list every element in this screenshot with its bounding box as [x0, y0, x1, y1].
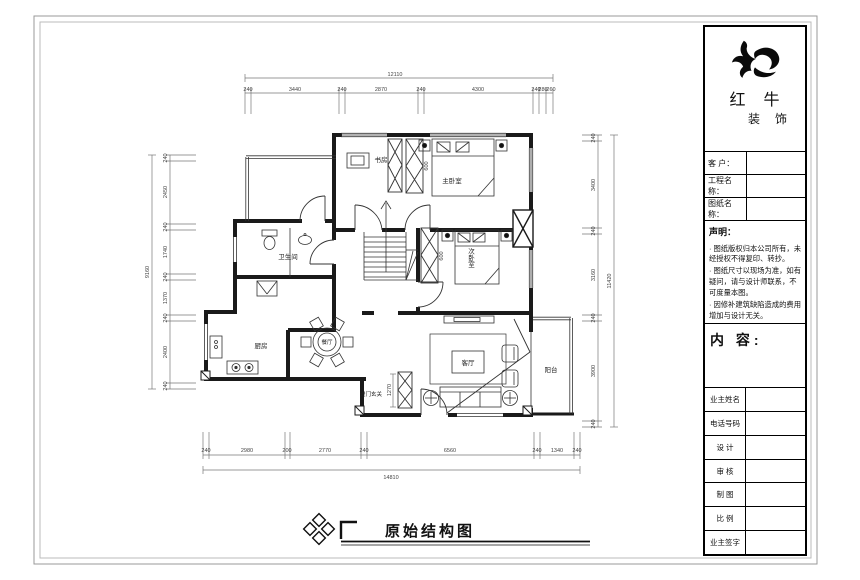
row-owner-name: 业主姓名: [705, 388, 805, 412]
dim-entry-cabinet: 1270: [387, 384, 393, 396]
fridge: [210, 336, 222, 358]
dim-bottom-seg-4: 240: [359, 448, 368, 454]
row-draft: 制 图: [705, 483, 805, 507]
field-row-drawing: 图纸名称：: [705, 198, 805, 221]
room-label-study: 书房: [375, 155, 388, 164]
dim-top-seg-4: 240: [416, 87, 425, 93]
dim-right-seg-0: 240: [591, 133, 597, 142]
stove: [227, 361, 258, 374]
dim-left-seg-3: 1740: [163, 246, 169, 258]
dim-top-total: 12110: [388, 72, 403, 78]
dim-right-seg-3: 3160: [591, 269, 597, 281]
dim-right-seg-5: 3900: [591, 365, 597, 377]
field-row-customer: 客 户：: [705, 152, 805, 175]
second-bed: [455, 230, 499, 284]
row-label: 业主签字: [705, 531, 746, 554]
dim-left: [148, 155, 196, 389]
dim-bottom-total: 14810: [383, 475, 398, 481]
toilet: [262, 230, 277, 250]
dim-left-seg-1: 2450: [163, 186, 169, 198]
row-value: [746, 460, 805, 483]
dim-top: [245, 74, 553, 114]
dim-top-seg-5: 4300: [472, 87, 484, 93]
brand-name-bottom: 装 饰: [705, 110, 805, 127]
study-desk: [347, 153, 369, 168]
field-value-project: [747, 175, 805, 197]
dim-right-seg-6: 240: [591, 419, 597, 428]
dim-bottom-seg-2: 200: [282, 448, 291, 454]
dim-right-total: 11420: [607, 274, 613, 289]
dim-bottom-seg-7: 1340: [551, 448, 563, 454]
dim-top-seg-2: 240: [337, 87, 346, 93]
dim-top-seg-3: 2870: [375, 87, 387, 93]
dim-right-seg-1: 3400: [591, 179, 597, 191]
row-label: 电话号码: [705, 412, 746, 435]
brand-logo-section: 红 牛 装 饰: [705, 27, 805, 152]
windows: [204, 133, 572, 416]
dim-bottom-seg-0: 240: [201, 448, 210, 454]
room-label-balcony: 阳台: [545, 365, 558, 374]
row-value: [746, 412, 805, 435]
sofa: [440, 387, 501, 407]
dim-left-seg-0: 240: [163, 153, 169, 162]
row-review: 审 核: [705, 460, 805, 484]
room-label-second: 次卧室: [467, 247, 475, 268]
living-rug: [430, 334, 506, 384]
row-value: [746, 483, 805, 506]
dim-right-seg-2: 240: [591, 226, 597, 235]
dim-wardrobe-master: 600: [424, 161, 430, 170]
brand-logo-bull: [719, 31, 791, 87]
dim-wardrobe-second: 600: [439, 251, 445, 260]
row-scale: 比 例: [705, 507, 805, 531]
statement-line: · 因修补建筑缺陷造成的费用增加与设计无关。: [709, 300, 802, 322]
field-value-drawing: [747, 198, 805, 220]
dim-left-seg-2: 240: [163, 222, 169, 231]
statement-title: 声明：: [709, 226, 802, 240]
duct-shaft: [513, 210, 533, 247]
dim-left-seg-5: 1370: [163, 292, 169, 304]
dim-bottom: [203, 432, 580, 474]
row-value: [746, 507, 805, 530]
dim-right-seg-4: 240: [591, 313, 597, 322]
dim-top-seg-8: 260: [546, 87, 555, 93]
dim-bottom-seg-3: 2770: [319, 448, 331, 454]
sheet-border: [34, 16, 817, 564]
title-block: 红 牛 装 饰 客 户： 工程名称： 图纸名称： 声明： · 图纸版权归本公司所…: [703, 25, 807, 556]
row-label: 审 核: [705, 460, 746, 483]
row-value: [746, 436, 805, 459]
dim-bottom-seg-1: 2980: [241, 448, 253, 454]
signature-rows: 业主姓名 电话号码 设 计 审 核 制 图 比 例 业主签字: [705, 388, 805, 554]
dim-left-seg-4: 240: [163, 272, 169, 281]
tv-cabinet: [444, 316, 494, 323]
statement-line: · 图纸尺寸以现场为准，如有疑问，请与设计师联系，不可度量本图。: [709, 266, 802, 299]
drawing-sheet: 书房 主卧室 次卧室 卫生间 厨房 餐厅 客厅 阳台 进门玄关 12110 24…: [0, 0, 860, 580]
row-label: 设 计: [705, 436, 746, 459]
row-label: 业主姓名: [705, 388, 746, 411]
row-value: [746, 531, 805, 554]
exterior-walls: [204, 133, 574, 417]
room-label-entry: 进门玄关: [360, 390, 383, 398]
stairs: [364, 201, 418, 280]
dim-bottom-seg-6: 240: [532, 448, 541, 454]
brand-name-top: 红 牛: [705, 92, 805, 110]
dim-bottom-seg-8: 240: [572, 448, 581, 454]
room-label-kitchen: 厨房: [255, 341, 268, 350]
title-stamp: [304, 514, 335, 545]
room-label-dining: 餐厅: [321, 338, 333, 346]
row-value: [746, 388, 805, 411]
bath-sink: [290, 228, 312, 277]
dim-left-seg-8: 240: [163, 381, 169, 390]
statement-line: · 图纸版权归本公司所有，未经授权不得复印、转抄。: [709, 244, 802, 266]
field-label-project: 工程名称：: [705, 175, 747, 197]
field-label-drawing: 图纸名称：: [705, 198, 747, 220]
mop-basin: [257, 281, 277, 296]
row-owner-sign: 业主签字: [705, 531, 805, 554]
room-label-bath: 卫生间: [278, 252, 298, 261]
field-value-customer: [747, 152, 805, 174]
master-bed: [432, 139, 494, 196]
row-label: 比 例: [705, 507, 746, 530]
room-label-living: 客厅: [462, 358, 476, 367]
dim-top-seg-0: 240: [243, 87, 252, 93]
content-section: 内 容:: [705, 324, 805, 388]
row-design: 设 计: [705, 436, 805, 460]
statement-section: 声明： · 图纸版权归本公司所有，未经授权不得复印、转抄。 · 图纸尺寸以现场为…: [705, 221, 805, 324]
dim-left-seg-7: 2400: [163, 346, 169, 358]
dim-left-seg-6: 240: [163, 313, 169, 322]
side-tables: [424, 391, 518, 406]
field-label-customer: 客 户：: [705, 152, 747, 174]
drawing-title: 原始结构图: [385, 522, 475, 540]
dim-left-total: 9160: [145, 266, 151, 278]
row-phone: 电话号码: [705, 412, 805, 436]
row-label: 制 图: [705, 483, 746, 506]
field-row-project: 工程名称：: [705, 175, 805, 198]
dim-top-seg-1: 3440: [289, 87, 301, 93]
dim-bottom-seg-5: 6560: [444, 448, 456, 454]
armchairs: [502, 345, 518, 387]
room-label-master: 主卧室: [442, 176, 462, 185]
wardrobes: [388, 139, 438, 408]
